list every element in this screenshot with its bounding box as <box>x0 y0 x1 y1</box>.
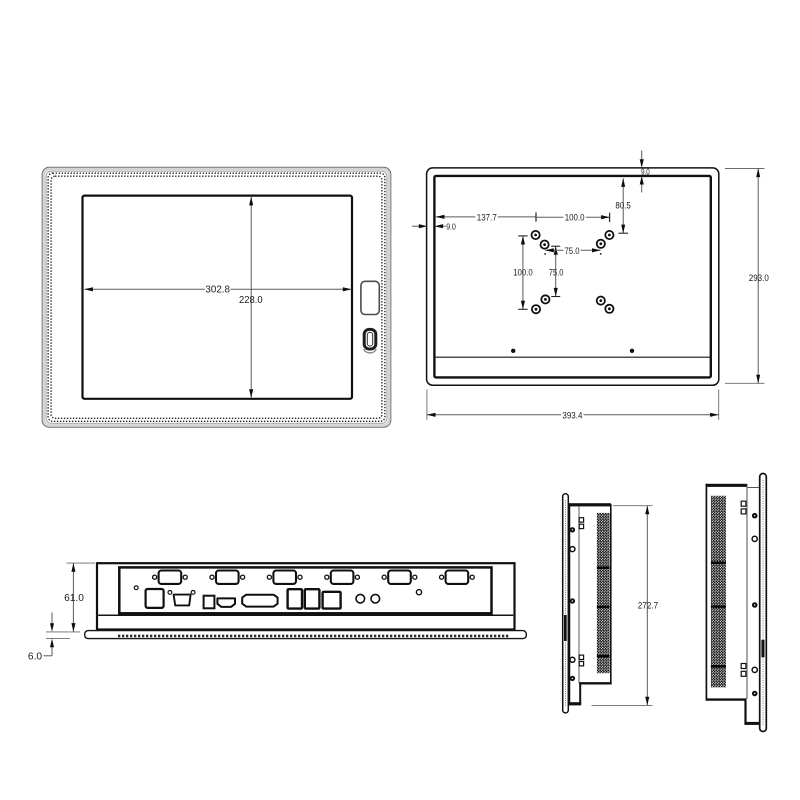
svg-text:75.0: 75.0 <box>565 246 580 257</box>
svg-text:100.0: 100.0 <box>513 267 533 278</box>
svg-text:9.0: 9.0 <box>641 168 650 177</box>
svg-text:61.0: 61.0 <box>64 593 84 604</box>
svg-text:272.7: 272.7 <box>638 600 658 611</box>
svg-text:137.7: 137.7 <box>477 212 497 223</box>
svg-text:75.0: 75.0 <box>549 267 564 278</box>
svg-text:228.0: 228.0 <box>239 295 263 306</box>
svg-text:9.0: 9.0 <box>446 222 456 232</box>
svg-text:6.0: 6.0 <box>28 651 42 662</box>
svg-text:302.8: 302.8 <box>205 285 230 296</box>
svg-text:100.0: 100.0 <box>565 213 585 224</box>
svg-text:293.0: 293.0 <box>749 273 769 284</box>
svg-text:80.5: 80.5 <box>615 200 630 211</box>
svg-text:393.4: 393.4 <box>562 410 583 421</box>
